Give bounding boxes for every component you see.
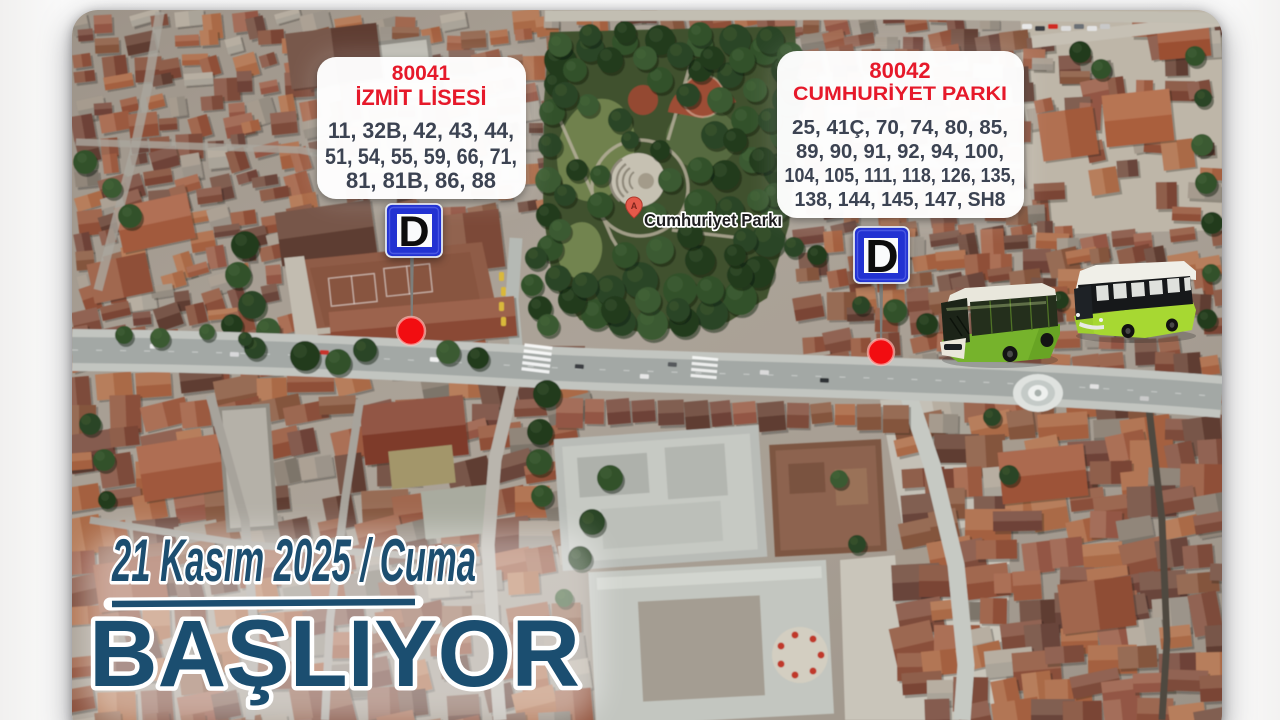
svg-text:D: D — [865, 230, 898, 282]
svg-text:Cumhuriyet Parkı: Cumhuriyet Parkı — [644, 210, 782, 230]
svg-text:A: A — [631, 201, 638, 211]
svg-text:51, 54, 55, 59, 66, 71,: 51, 54, 55, 59, 66, 71, — [325, 144, 517, 169]
svg-text:80041: 80041 — [392, 62, 451, 85]
svg-text:81, 81B, 86, 88: 81, 81B, 86, 88 — [346, 168, 496, 193]
svg-text:11, 32B, 42, 43, 44,: 11, 32B, 42, 43, 44, — [328, 118, 514, 143]
svg-text:İZMİT LİSESİ: İZMİT LİSESİ — [356, 85, 487, 110]
svg-text:CUMHURİYET PARKI: CUMHURİYET PARKI — [793, 82, 1007, 105]
svg-text:89, 90, 91, 92, 94, 100,: 89, 90, 91, 92, 94, 100, — [796, 141, 1004, 163]
svg-text:25, 41Ç, 70, 74, 80, 85,: 25, 41Ç, 70, 74, 80, 85, — [792, 117, 1008, 139]
svg-text:BAŞLIYOR: BAŞLIYOR — [89, 601, 580, 707]
svg-text:21 Kasım 2025 / Cuma: 21 Kasım 2025 / Cuma — [111, 527, 476, 594]
svg-text:104, 105, 111, 118, 126, 135,: 104, 105, 111, 118, 126, 135, — [785, 165, 1016, 187]
svg-text:D: D — [398, 208, 429, 256]
svg-text:138, 144, 145, 147, SH8: 138, 144, 145, 147, SH8 — [795, 189, 1006, 211]
svg-text:80042: 80042 — [869, 58, 930, 83]
